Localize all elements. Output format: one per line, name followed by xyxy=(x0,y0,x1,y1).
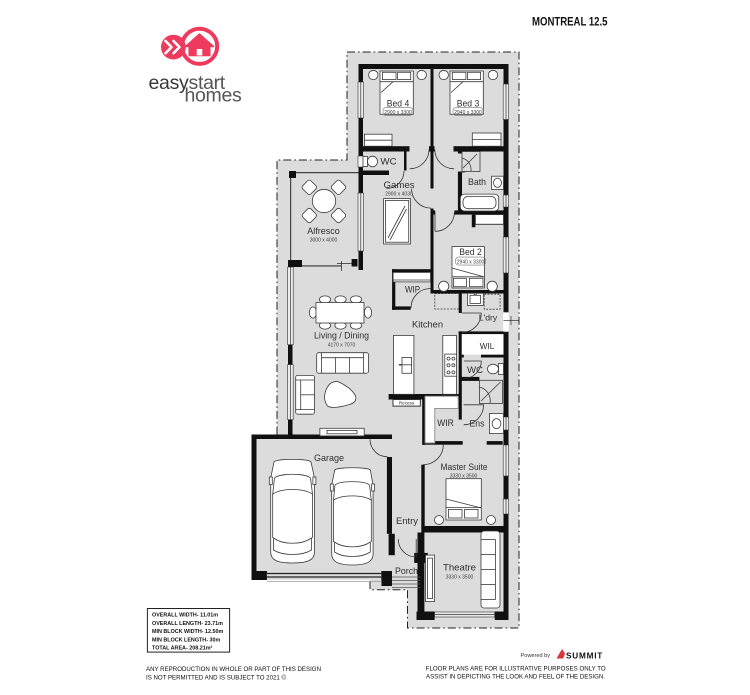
svg-text:Games: Games xyxy=(384,179,415,190)
svg-text:MONTREAL 12.5: MONTREAL 12.5 xyxy=(532,15,608,29)
svg-text:2900 x 3300: 2900 x 3300 xyxy=(384,110,412,116)
svg-text:IS NOT PERMITTED AND IS SUBJEC: IS NOT PERMITTED AND IS SUBJECT TO 2021 … xyxy=(146,675,287,682)
svg-text:homes: homes xyxy=(184,85,242,107)
svg-text:WC: WC xyxy=(467,365,484,375)
svg-text:Porch: Porch xyxy=(395,566,418,576)
svg-text:Garage: Garage xyxy=(314,452,344,463)
svg-text:TOTAL AREA- 208.21m²: TOTAL AREA- 208.21m² xyxy=(152,646,213,652)
svg-text:WIR: WIR xyxy=(437,418,454,428)
svg-text:WIP: WIP xyxy=(405,285,420,295)
svg-text:MIN BLOCK LENGTH- 30m: MIN BLOCK LENGTH- 30m xyxy=(152,637,220,643)
svg-text:Living / Dining: Living / Dining xyxy=(314,331,369,341)
svg-text:MIN BLOCK WIDTH- 12.50m: MIN BLOCK WIDTH- 12.50m xyxy=(152,629,223,635)
svg-text:Ens: Ens xyxy=(470,419,486,429)
svg-text:FLOOR PLANS ARE FOR ILLUSTRATI: FLOOR PLANS ARE FOR ILLUSTRATIVE PURPOSE… xyxy=(426,666,606,673)
svg-text:2940 x 3300: 2940 x 3300 xyxy=(457,260,485,266)
svg-text:2900 x 4030: 2900 x 4030 xyxy=(385,192,413,198)
svg-text:ASSIST IN DEPICTING THE LOOK A: ASSIST IN DEPICTING THE LOOK AND FEEL OF… xyxy=(426,674,605,681)
svg-text:Alfresco: Alfresco xyxy=(307,226,340,236)
svg-text:Bed 2: Bed 2 xyxy=(459,247,482,257)
svg-text:Bath: Bath xyxy=(468,177,486,187)
svg-text:OVERALL LENGTH- 23.71m: OVERALL LENGTH- 23.71m xyxy=(152,621,223,627)
svg-text:3330 x 3500: 3330 x 3500 xyxy=(450,474,478,480)
svg-text:Powered by: Powered by xyxy=(521,653,551,659)
svg-text:Master Suite: Master Suite xyxy=(441,462,488,472)
svg-text:Bed 4: Bed 4 xyxy=(387,99,410,109)
svg-text:ANY REPRODUCTION IN WHOLE OR P: ANY REPRODUCTION IN WHOLE OR PART OF THI… xyxy=(146,666,321,673)
svg-text:L'dry: L'dry xyxy=(479,313,498,323)
svg-text:Entry: Entry xyxy=(396,516,419,526)
svg-text:OVERALL WIDTH- 11.01m: OVERALL WIDTH- 11.01m xyxy=(152,613,218,619)
svg-text:Theatre: Theatre xyxy=(443,562,476,573)
svg-text:3000 x 4000: 3000 x 4000 xyxy=(310,238,338,244)
svg-text:4170 x 7070: 4170 x 7070 xyxy=(328,343,356,349)
svg-text:WC: WC xyxy=(381,157,398,167)
svg-text:Bed 3: Bed 3 xyxy=(457,99,480,109)
svg-text:2940 x 3300: 2940 x 3300 xyxy=(454,110,482,116)
svg-text:WIL: WIL xyxy=(480,341,495,351)
svg-text:SUMMIT: SUMMIT xyxy=(566,652,603,661)
svg-text:3330 x 3500: 3330 x 3500 xyxy=(446,575,474,581)
svg-text:Kitchen: Kitchen xyxy=(412,319,443,330)
svg-text:Recess: Recess xyxy=(399,401,415,406)
